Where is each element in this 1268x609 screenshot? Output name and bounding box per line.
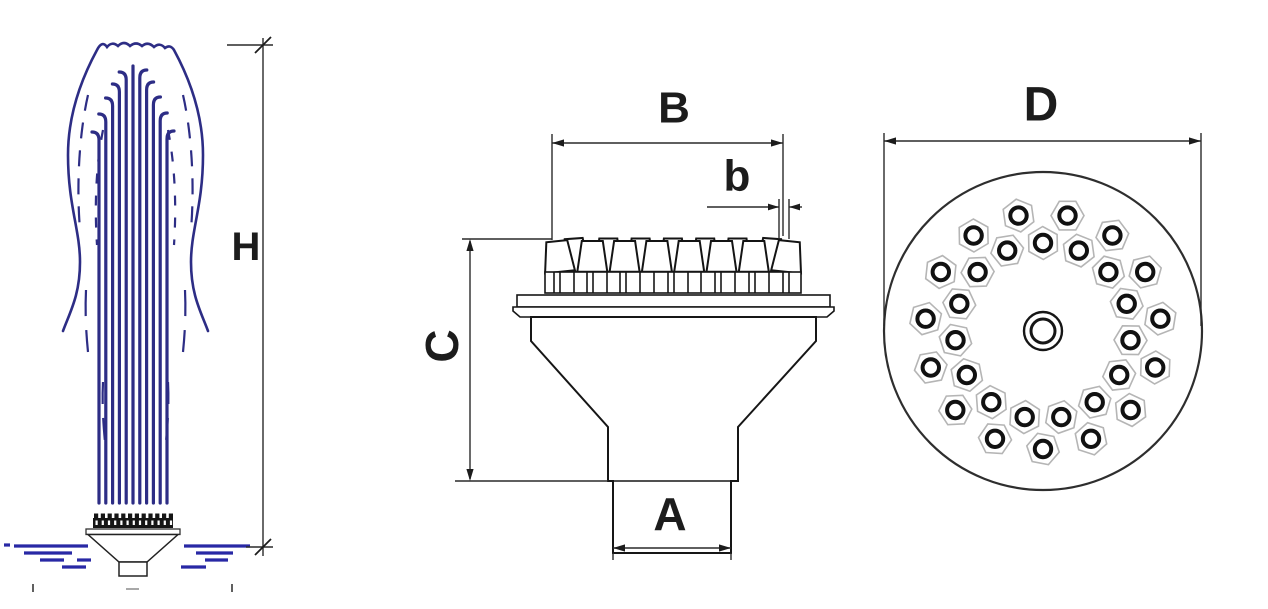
band-dot: [102, 521, 104, 526]
band-dot: [139, 521, 141, 526]
nozzle-hole: [1016, 409, 1032, 425]
dim-label-B: B: [658, 84, 690, 133]
nozzle-tip: [114, 514, 118, 519]
band-dot: [127, 521, 129, 526]
nozzle-hole: [917, 311, 933, 327]
nozzle-cone: [642, 241, 672, 272]
nozzle-hole: [1053, 409, 1069, 425]
nozzle-hole: [1100, 264, 1116, 280]
dim-label-b: b: [724, 152, 751, 201]
nozzle-hole: [983, 394, 999, 410]
nozzle-tip: [142, 514, 146, 519]
band-dot: [151, 521, 153, 526]
nozzle-tip: [128, 514, 132, 519]
device-plate: [86, 529, 180, 535]
water-jet: [92, 132, 99, 503]
nozzle-hole: [1104, 227, 1120, 243]
fountain-nozzle-diagram: H B b: [0, 0, 1268, 609]
nozzle-device-small: [86, 514, 180, 577]
nozzle-cone: [577, 241, 607, 272]
nozzle-hole: [999, 242, 1015, 258]
nozzle-cone: [707, 241, 737, 272]
nozzle-hole: [1119, 296, 1135, 312]
nozzle-tip: [155, 514, 159, 519]
dim-label-H: H: [232, 225, 261, 269]
band-dot: [133, 521, 135, 526]
bottom-dimension-remnant: [33, 584, 232, 592]
nozzle-tip: [121, 514, 125, 519]
nozzle-hole: [1035, 235, 1051, 251]
nozzle-hole: [923, 359, 939, 375]
band-dot: [158, 521, 160, 526]
nozzle-cone: [610, 241, 640, 272]
water-jet: [167, 131, 174, 503]
nozzle-cone: [739, 241, 769, 272]
nozzle-hole: [1010, 207, 1026, 223]
nozzle-hole: [965, 227, 981, 243]
nozzle-hole: [947, 332, 963, 348]
spray-dashed-arcs: [78, 95, 192, 442]
center-hole-inner: [1031, 319, 1055, 343]
flange-plate-lip: [513, 307, 834, 317]
nozzle-hole: [1035, 441, 1051, 457]
band-dot: [114, 521, 116, 526]
nozzle-hole: [969, 264, 985, 280]
band-dot: [96, 521, 98, 526]
flange-plate-top: [517, 295, 830, 307]
dimension-H: H: [227, 37, 273, 556]
nozzle-cone: [674, 241, 704, 272]
nozzle-tip: [135, 514, 139, 519]
nozzle-tip: [108, 514, 112, 519]
device-funnel: [88, 535, 178, 563]
band-dot: [120, 521, 122, 526]
water-jets: [92, 66, 174, 503]
nozzle-hole: [1152, 311, 1168, 327]
band-dot: [145, 521, 147, 526]
nozzle-hole: [1087, 394, 1103, 410]
dim-label-D: D: [1024, 79, 1059, 132]
band-dot: [108, 521, 110, 526]
nozzle-hole: [987, 431, 1003, 447]
device-pipe: [119, 562, 147, 576]
nozzle-tip: [169, 514, 173, 519]
nozzle-tip: [94, 514, 98, 519]
band-dot: [170, 521, 172, 526]
fountain-spray-view: H: [4, 37, 273, 592]
nozzle-tip: [101, 514, 105, 519]
nozzle-hole: [1147, 359, 1163, 375]
dim-label-C: C: [416, 329, 468, 362]
nozzle-tips-silhouette: [94, 514, 173, 519]
nozzle-tip: [162, 514, 166, 519]
nozzle-hole: [1083, 431, 1099, 447]
nozzle-hole: [1122, 332, 1138, 348]
nozzle-side-view: B b C A: [416, 84, 834, 561]
nozzle-hole: [1123, 402, 1139, 418]
nozzle-hole: [947, 402, 963, 418]
dimension-b: b: [707, 152, 802, 240]
spray-envelope: [63, 43, 208, 331]
nozzle-base-band: [545, 272, 801, 293]
nozzle-plan-view: D: [884, 79, 1202, 491]
nozzle-hole: [951, 296, 967, 312]
nozzle-hole: [1137, 264, 1153, 280]
nozzle-hole: [933, 264, 949, 280]
nozzle-hole: [1111, 367, 1127, 383]
nozzle-hole: [959, 367, 975, 383]
nozzle-tip: [148, 514, 152, 519]
band-dot: [164, 521, 166, 526]
nozzle-hole: [1059, 207, 1075, 223]
diagram-canvas: H B b: [0, 0, 1268, 609]
nozzle-hole: [1071, 242, 1087, 258]
dim-label-A: A: [653, 488, 686, 540]
